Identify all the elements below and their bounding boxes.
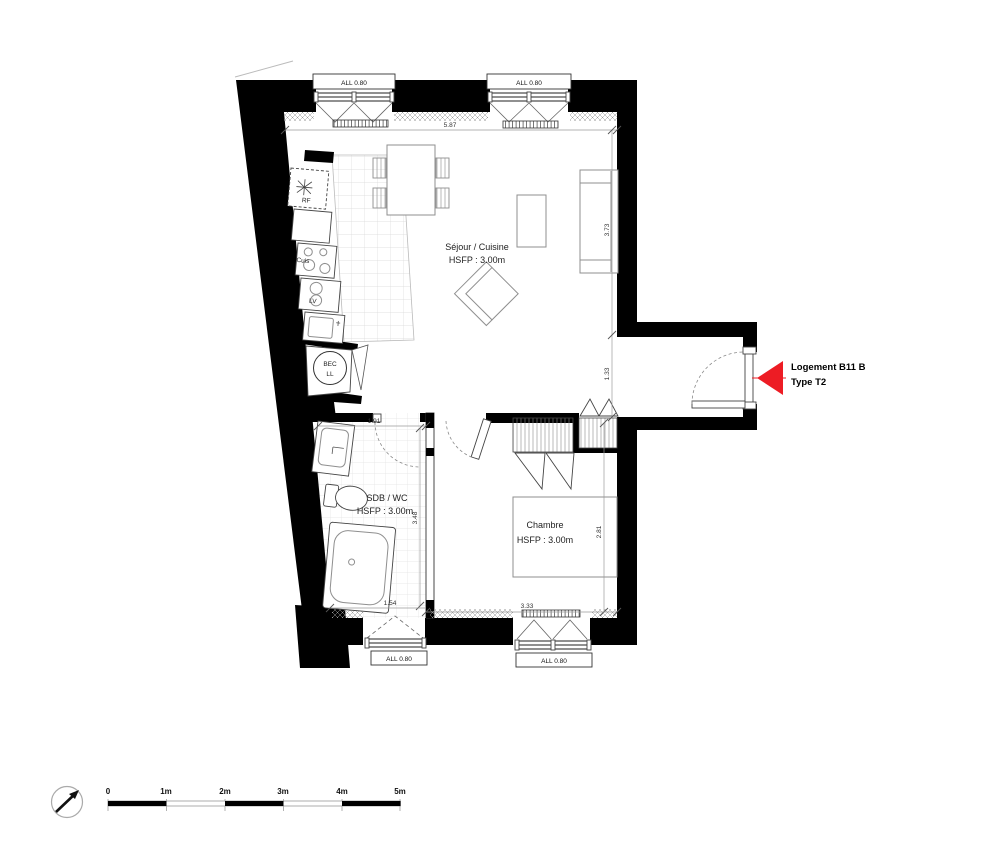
sejour-name: Séjour / Cuisine	[445, 242, 509, 252]
north-compass-icon	[52, 787, 83, 818]
dim-sdb-height: 3.48	[412, 511, 419, 524]
bathroom-sink	[312, 421, 355, 476]
laundry-label-line2: LL	[326, 371, 334, 378]
window-label: ALL 0.80	[341, 80, 367, 87]
radiator	[333, 120, 388, 127]
entry-door	[692, 347, 756, 409]
sdb-chambre-wall-mid-block	[426, 448, 434, 456]
bottom-wall-middle	[425, 618, 513, 645]
dim-sejour-height: 3.73	[604, 223, 611, 236]
fridge-label: RF	[302, 197, 311, 205]
scale-bar: 0 1m 2m 3m 4m 5m	[52, 787, 406, 818]
closet-door-fold	[546, 453, 574, 489]
top-wall-left	[272, 80, 316, 112]
sdb-chambre-wall	[426, 413, 434, 618]
radiator	[522, 610, 580, 617]
scale-label-2: 2m	[219, 787, 231, 796]
dim-chambre-width: 3.33	[521, 603, 534, 610]
window-label: ALL 0.80	[541, 658, 567, 665]
dim-top-width: 5.87	[444, 122, 457, 129]
closet-chambre	[513, 418, 573, 452]
scale-label-3: 3m	[277, 787, 289, 796]
neighbor-wall-line	[235, 61, 293, 77]
chair	[373, 158, 386, 178]
kitchen-unit	[291, 209, 332, 243]
unit-label-line2: Type T2	[791, 377, 826, 388]
closet-door-fold	[515, 453, 545, 489]
floor-plan-page: ALL 0.80 ALL 0.80 ALL 0.80	[0, 0, 1000, 857]
right-wall-lower	[617, 417, 637, 645]
window-label: ALL 0.80	[386, 656, 412, 663]
corridor-bottom-wall	[617, 417, 757, 430]
chambre-name: Chambre	[526, 520, 563, 530]
dim-chambre-height: 2.81	[596, 525, 603, 538]
window-top-right: ALL 0.80	[487, 74, 571, 128]
closet2-back-wall	[579, 448, 617, 453]
cooktop-unit: Cuis	[295, 243, 337, 278]
kitchen-sink-unit	[303, 312, 345, 343]
scale-label-1: 1m	[160, 787, 172, 796]
dim-sdb-width-bottom: 1.54	[384, 600, 397, 607]
laundry-label-line1: BEC	[323, 361, 337, 368]
window-top-left: ALL 0.80	[313, 74, 395, 127]
chair	[373, 188, 386, 208]
dining-table	[387, 145, 435, 215]
sejour-ceiling: HSFP : 3.00m	[449, 255, 505, 265]
sdb-name: SDB / WC	[366, 493, 408, 503]
scale-label-0: 0	[106, 787, 111, 796]
dishwasher-label: LV	[309, 298, 318, 306]
right-wall-upper	[617, 80, 637, 337]
cooktop-label: Cuis	[296, 257, 310, 265]
sdb-chambre-wall-top-block	[426, 413, 434, 428]
sdb-ceiling: HSFP : 3.00m	[357, 506, 413, 516]
chambre-door-leaf	[471, 419, 491, 460]
kitchen-top-stub	[304, 150, 334, 163]
closet-entry	[579, 418, 617, 448]
armchair	[455, 262, 519, 326]
radiator	[503, 121, 558, 128]
corridor-top-wall	[617, 322, 757, 337]
window-bottom-right: ALL 0.80	[515, 610, 592, 667]
dim-sdb-width-top: 1.91	[368, 418, 381, 425]
window-bottom-left: ALL 0.80	[365, 616, 427, 665]
scale-label-4: 4m	[336, 787, 348, 796]
entry-arrow-icon	[757, 361, 783, 395]
closet-divider	[573, 413, 579, 453]
laundry-closet: BEC LL	[306, 345, 368, 396]
unit-label-line1: Logement B11 B	[791, 362, 866, 373]
entry-door-leaf	[692, 401, 745, 408]
chambre-door	[446, 419, 491, 460]
floor-plan-drawing: ALL 0.80 ALL 0.80 ALL 0.80	[0, 0, 1000, 857]
bottom-wall-right	[590, 618, 637, 645]
chambre-ceiling: HSFP : 3.00m	[517, 535, 573, 545]
laundry-door-leaf	[352, 345, 368, 390]
dishwasher-unit: LV	[298, 278, 341, 312]
top-wall-middle	[392, 80, 490, 112]
scale-label-5: 5m	[394, 787, 406, 796]
coffee-table	[517, 195, 546, 247]
window-label: ALL 0.80	[516, 80, 542, 87]
chair	[436, 158, 449, 178]
bottom-wall-left	[307, 618, 363, 645]
chair	[436, 188, 449, 208]
unit-annotation: Logement B11 B Type T2	[752, 361, 866, 395]
closet-door-fold	[580, 399, 599, 416]
chambre-furniture	[513, 399, 618, 577]
dim-entry-height: 1.33	[604, 367, 611, 380]
